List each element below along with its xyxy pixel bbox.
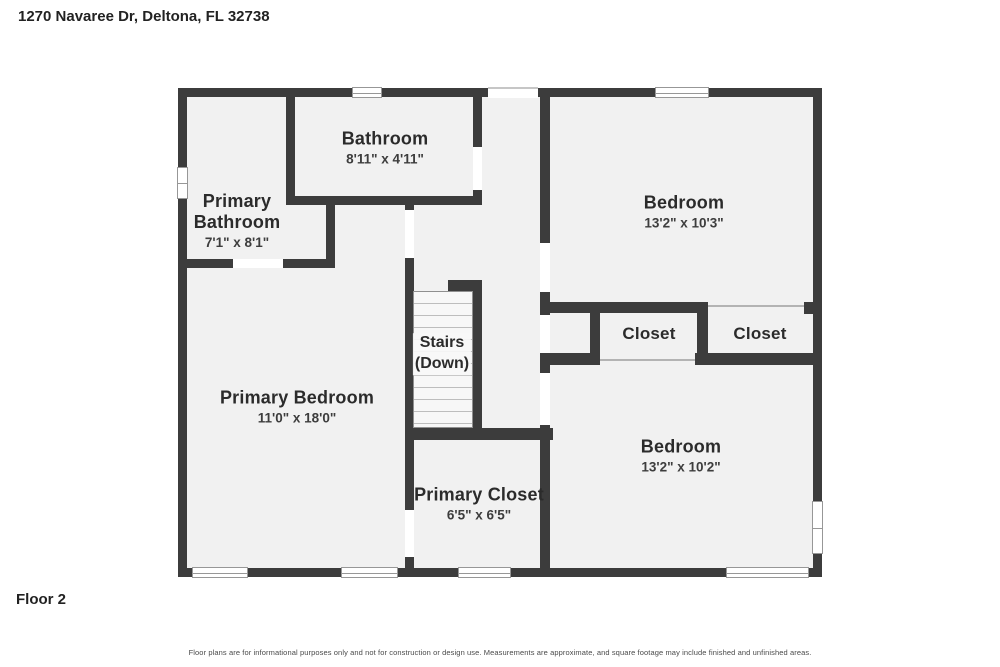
room-label-primary-closet: Primary Closet 6'5" x 6'5" (414, 484, 544, 523)
wall-bathroom-bottom (286, 196, 482, 205)
wall-stairs-top-stub (448, 280, 482, 291)
room-dims: 13'2" x 10'2" (641, 460, 721, 476)
room-dims: 7'1" x 8'1" (174, 235, 300, 251)
wall-closet-top-right-stub (804, 302, 813, 314)
wall-closet-top (543, 302, 708, 313)
room-name: Closet (733, 324, 786, 344)
door-hall-nook (540, 315, 550, 353)
door-bathroom (473, 147, 482, 190)
stairs-direction: (Down) (415, 355, 469, 372)
wall-primary-bathroom-inner (326, 200, 335, 268)
stairs-label: Stairs (Down) (413, 333, 471, 375)
disclaimer-text: Floor plans are for informational purpos… (0, 648, 1000, 657)
door-bedroom-bottom (540, 373, 550, 425)
window-bottom-primary-bedroom-2 (341, 567, 398, 578)
room-label-primary-bedroom: Primary Bedroom 11'0" x 18'0" (220, 387, 374, 426)
opening-top-hallway (488, 87, 538, 98)
door-primary-bedroom (405, 210, 414, 258)
address-title: 1270 Navaree Dr, Deltona, FL 32738 (18, 8, 270, 25)
window-bottom-primary-closet (458, 567, 511, 578)
floor-plan-page: 1270 Navaree Dr, Deltona, FL 32738 (0, 0, 1000, 667)
wall-stairs-right (472, 288, 482, 428)
wall-bathroom-left (286, 97, 295, 205)
window-top-bedroom (655, 87, 709, 98)
wall-nook-right (590, 313, 600, 354)
wall-primary-closet-top (405, 428, 553, 440)
closet-right-opening-line (708, 305, 804, 307)
wall-bathroom-right-lower (473, 190, 482, 205)
room-label-bathroom: Bathroom 8'11" x 4'11" (342, 128, 429, 167)
door-primary-bathroom (233, 259, 283, 268)
room-dims: 6'5" x 6'5" (414, 508, 544, 524)
room-name: Bathroom (342, 128, 429, 149)
wall-primary-bathroom-bottom-right (283, 259, 335, 268)
room-label-closet-left: Closet (622, 324, 675, 344)
closet-left-opening-line (600, 359, 695, 361)
window-bottom-primary-bedroom-1 (192, 567, 248, 578)
wall-primary-bathroom-bottom-left (178, 259, 233, 268)
wall-hall-left-stub (405, 196, 414, 210)
room-name: Primary Closet (414, 484, 544, 505)
room-name: Closet (622, 324, 675, 344)
wall-bathroom-right-upper (473, 97, 482, 147)
door-primary-closet (405, 510, 414, 557)
room-dims: 11'0" x 18'0" (220, 411, 374, 427)
room-label-primary-bathroom: Primary Bathroom 7'1" x 8'1" (174, 191, 300, 251)
wall-outer-left (178, 88, 187, 577)
door-bedroom-top (540, 243, 550, 292)
room-label-bedroom-bottom: Bedroom 13'2" x 10'2" (641, 436, 721, 475)
wall-closet-bottom-left (540, 353, 600, 365)
room-label-closet-right: Closet (733, 324, 786, 344)
room-name: Bedroom (641, 436, 721, 457)
wall-bedroom-top-left (540, 97, 550, 243)
room-name: Primary Bathroom (174, 191, 300, 233)
window-top-bathroom (352, 87, 382, 98)
wall-hall-left-bottom-stub (405, 557, 414, 568)
room-label-bedroom-top: Bedroom 13'2" x 10'3" (644, 192, 724, 231)
window-bottom-bedroom (726, 567, 809, 578)
window-right-bedroom (812, 501, 823, 554)
room-name: Bedroom (644, 192, 724, 213)
room-dims: 8'11" x 4'11" (342, 152, 429, 168)
floor-label: Floor 2 (16, 591, 66, 608)
room-name: Primary Bedroom (220, 387, 374, 408)
wall-closet-bottom-right (695, 353, 813, 365)
stairs-name: Stairs (420, 334, 464, 351)
room-dims: 13'2" x 10'3" (644, 216, 724, 232)
wall-closet-divider (697, 313, 708, 354)
